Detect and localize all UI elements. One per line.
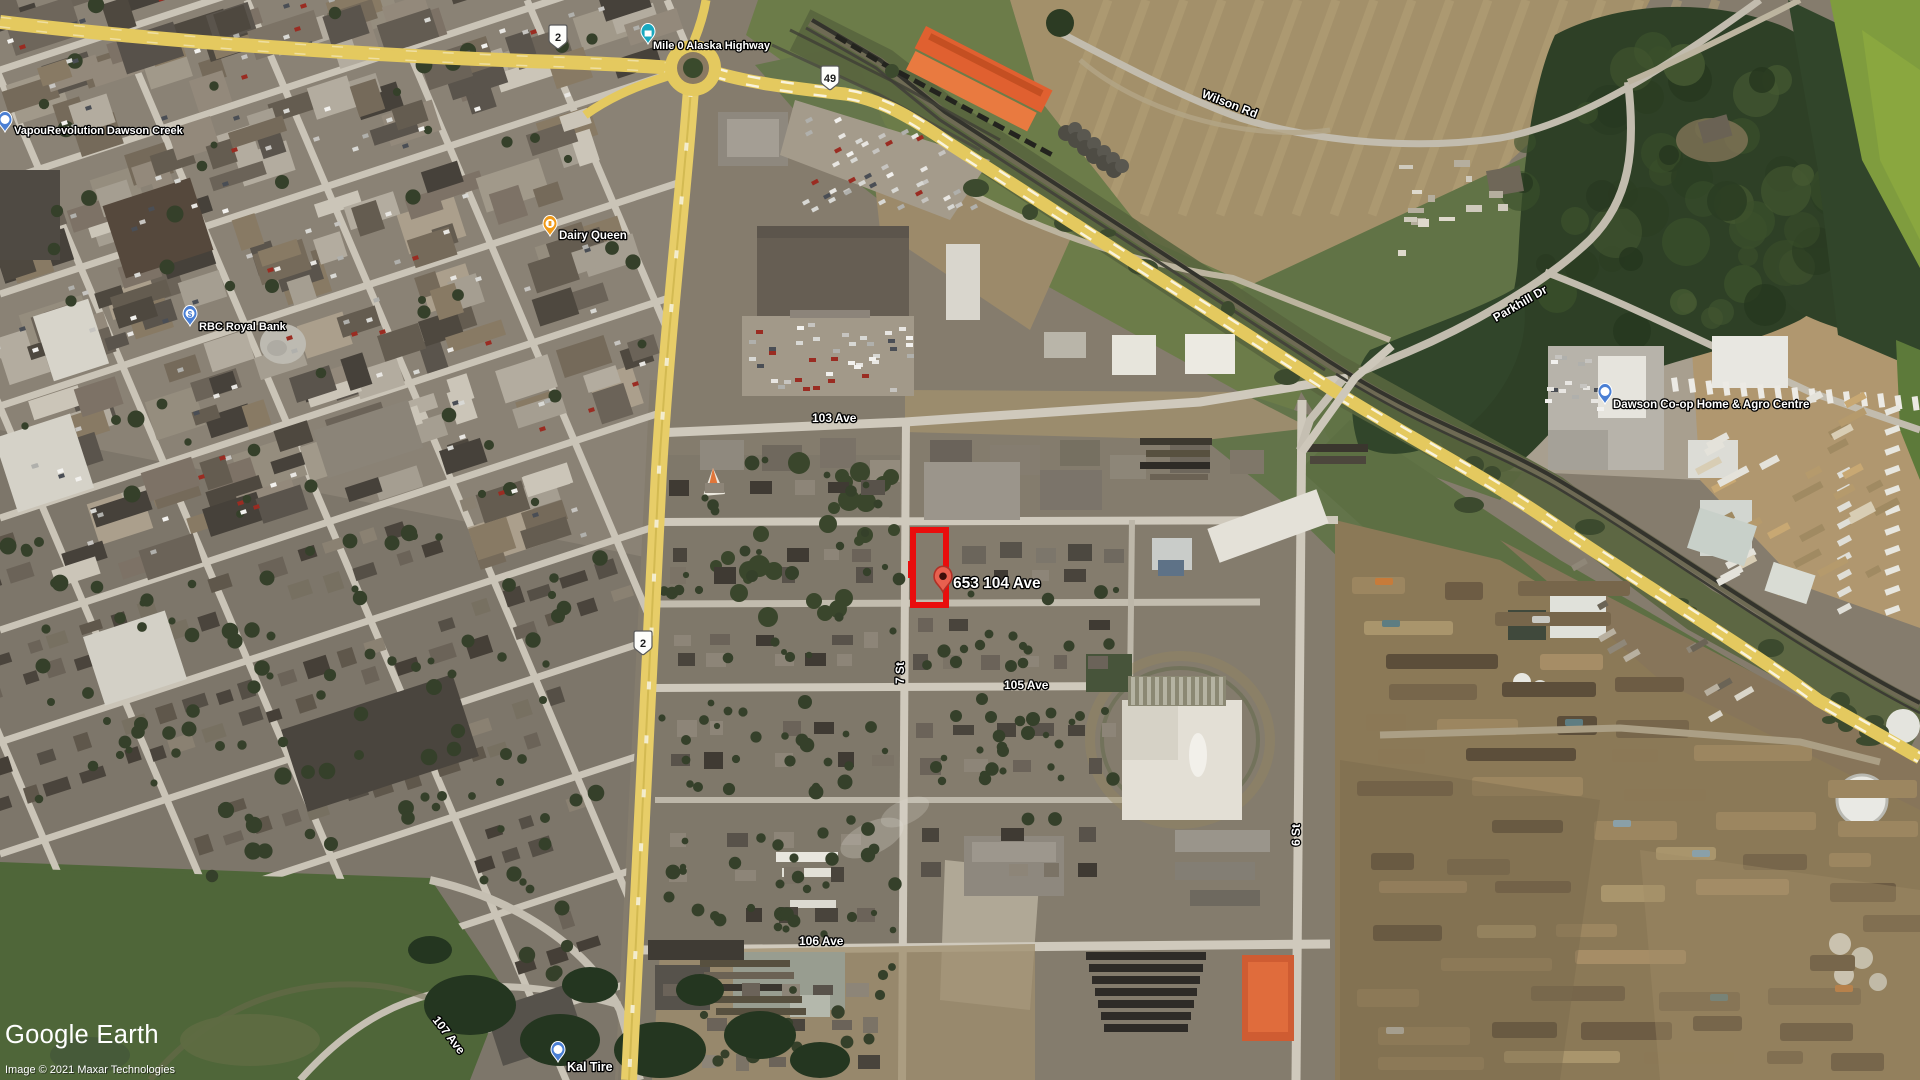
svg-text:RBC Royal Bank: RBC Royal Bank — [199, 321, 287, 333]
svg-text:105 Ave: 105 Ave — [1004, 678, 1049, 692]
svg-text:Dairy Queen: Dairy Queen — [559, 230, 627, 242]
svg-text:VapouRevolution Dawson Creek: VapouRevolution Dawson Creek — [14, 125, 184, 137]
svg-text:Dawson Co-op Home & Agro Centr: Dawson Co-op Home & Agro Centre — [1613, 399, 1809, 411]
svg-text:49: 49 — [824, 73, 836, 85]
svg-text:2: 2 — [555, 32, 561, 44]
svg-text:$: $ — [188, 310, 193, 319]
svg-text:103 Ave: 103 Ave — [812, 411, 857, 425]
svg-text:653 104 Ave: 653 104 Ave — [953, 575, 1041, 592]
svg-text:6 St: 6 St — [1289, 824, 1303, 846]
svg-text:7 St: 7 St — [893, 662, 907, 684]
svg-text:Image © 2021 Maxar Technologie: Image © 2021 Maxar Technologies — [5, 1064, 175, 1076]
svg-text:Kal Tire: Kal Tire — [567, 1060, 613, 1074]
svg-text:2: 2 — [640, 638, 646, 650]
svg-text:106 Ave: 106 Ave — [799, 934, 844, 948]
svg-text:Google Earth: Google Earth — [5, 1021, 159, 1049]
svg-text:Mile 0 Alaska Highway: Mile 0 Alaska Highway — [653, 40, 771, 52]
